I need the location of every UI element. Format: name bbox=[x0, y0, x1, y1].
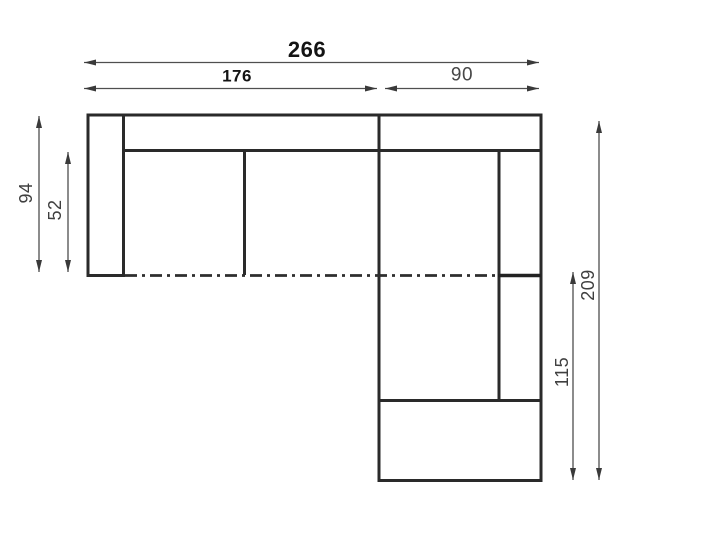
dim-label-total-width: 266 bbox=[288, 39, 326, 61]
sofa-dimension-diagram: 266 176 90 94 52 209 115 bbox=[0, 0, 717, 559]
sofa-outline bbox=[88, 115, 541, 481]
dim-label-chaise-length: 115 bbox=[553, 357, 571, 387]
dim-label-total-depth: 94 bbox=[17, 182, 35, 203]
dim-label-right-section-length: 209 bbox=[579, 269, 597, 301]
dim-label-right-section-width: 90 bbox=[451, 66, 473, 85]
diagram-canvas bbox=[0, 0, 717, 559]
dim-label-left-section-width: 176 bbox=[222, 68, 252, 85]
sofa-outline-group bbox=[87, 115, 542, 481]
dim-label-seat-depth: 52 bbox=[46, 199, 64, 220]
